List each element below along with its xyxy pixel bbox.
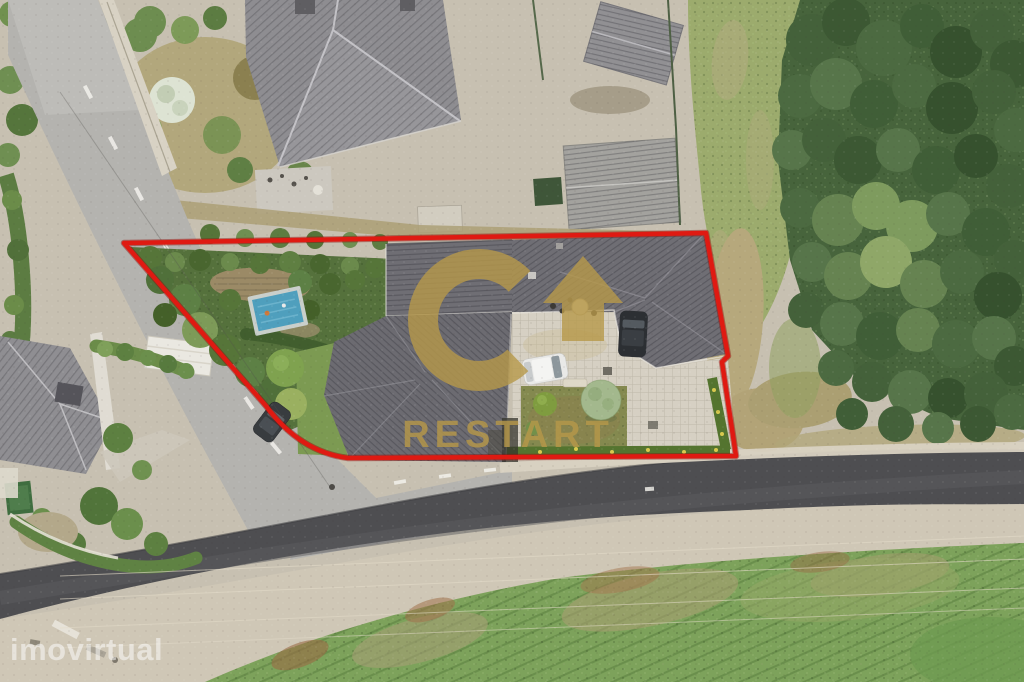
photo-grain-overlay: [0, 0, 1024, 682]
portal-watermark-text: imovirtual: [10, 632, 163, 667]
logo-text: RESTART: [402, 414, 614, 456]
aerial-listing-photo: RESTART imovirtual: [0, 0, 1024, 682]
